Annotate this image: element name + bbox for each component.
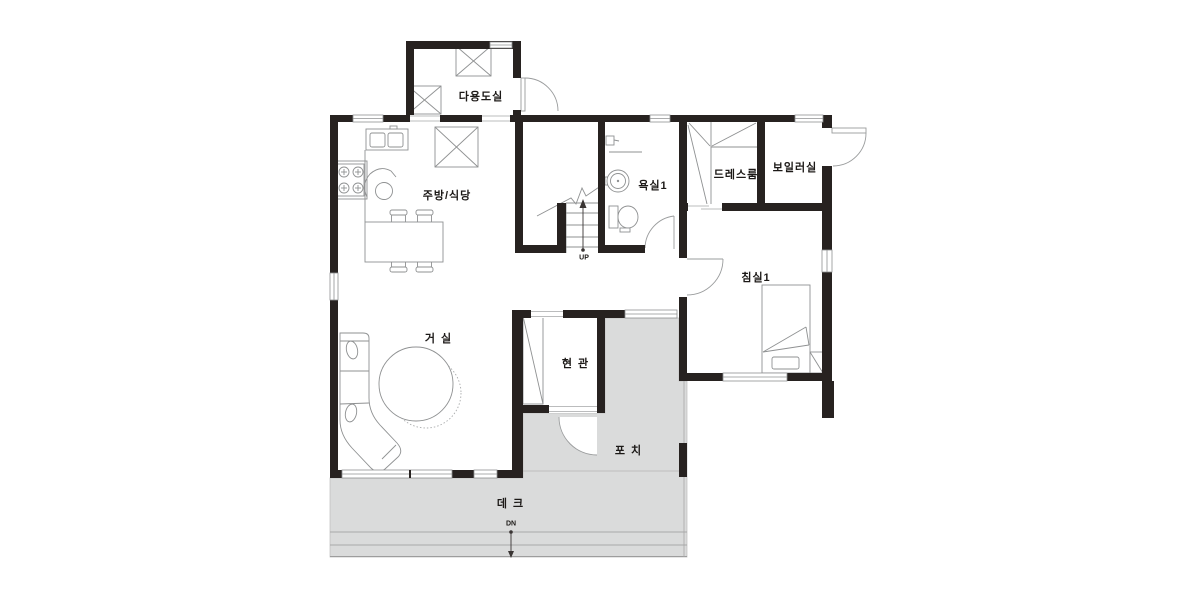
washer [456, 46, 491, 76]
bed [762, 285, 810, 373]
bedroom-door [687, 259, 723, 295]
refrigerator [435, 127, 478, 167]
room-label-bathroom1: 욕실1 [638, 177, 667, 193]
utility-door [521, 78, 558, 111]
entry-threshold [549, 405, 597, 413]
utility-window [490, 42, 512, 48]
entrance-opening [531, 310, 563, 318]
bathroom-door [645, 216, 674, 249]
kitchen-sink [366, 126, 408, 150]
kitchen-window [353, 115, 383, 122]
doors [521, 78, 866, 295]
room-label-living: 거실 [425, 330, 457, 346]
room-label-boiler: 보일러실 [773, 159, 817, 175]
bathroom-window [650, 115, 670, 122]
shower [606, 136, 642, 152]
boiler-window [795, 115, 823, 122]
shoe-cabinet [523, 316, 543, 404]
utility-opening-2 [482, 115, 510, 122]
room-label-kitchen: 주방/식당 [423, 187, 472, 203]
bedroom-east-window [822, 250, 832, 272]
bedroom-south-window [723, 373, 787, 381]
room-label-bedroom1: 침실1 [741, 269, 770, 285]
dressroom-sliding-door [688, 204, 722, 211]
room-label-entrance: 현관 [562, 355, 594, 371]
dining-table [365, 150, 443, 272]
nightstand [810, 352, 823, 373]
boiler-door [832, 128, 866, 166]
stairs-up-label: UP [579, 255, 589, 262]
wardrobe [688, 122, 757, 206]
utility-opening-1 [410, 115, 440, 122]
living-front-window-2 [474, 470, 497, 478]
deck-down-label: DN [506, 521, 516, 528]
washbasin [605, 170, 629, 192]
floor-plan-drawing [0, 0, 1200, 600]
stove [333, 161, 367, 199]
living-side-window [330, 273, 338, 300]
room-label-deck: 데크 [497, 495, 529, 511]
rug [379, 347, 461, 428]
toilet [609, 206, 638, 232]
hall-window [625, 310, 677, 318]
floor-plan: 다용도실 주방/식당 욕실1 드레스룸 보일러실 침실1 거실 현관 포치 데크… [0, 0, 1200, 600]
room-label-utility: 다용도실 [459, 88, 503, 104]
living-front-window-1 [342, 470, 452, 478]
room-label-dressroom: 드레스룸 [714, 166, 758, 182]
kitchen-chair [365, 169, 396, 200]
room-label-porch: 포치 [615, 442, 647, 458]
staircase [537, 181, 608, 253]
